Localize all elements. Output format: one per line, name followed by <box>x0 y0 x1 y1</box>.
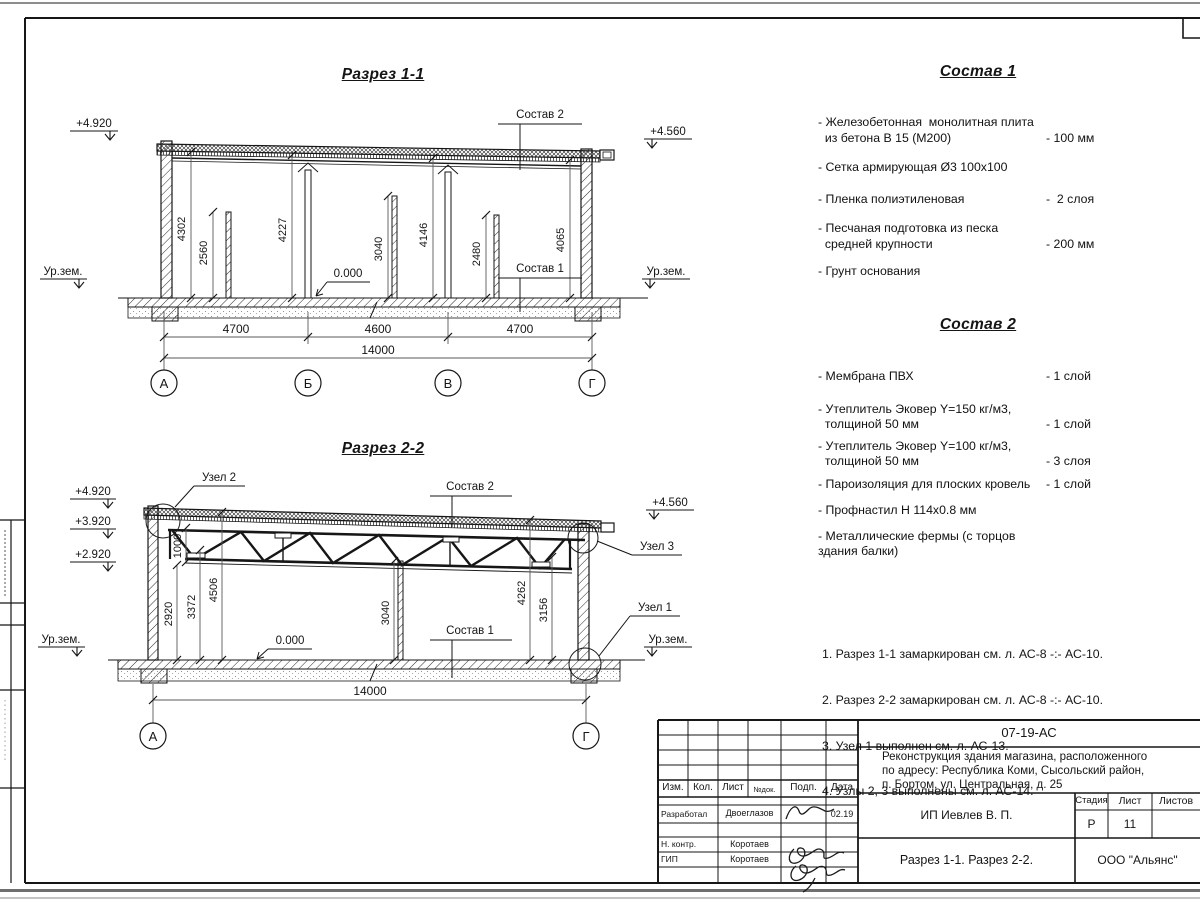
ground-left-s2: Ур.зем. <box>41 634 80 646</box>
col-ndok: №док. <box>748 785 781 794</box>
note-line: 2. Разрез 2-2 замаркирован см. л. АС-8 -… <box>822 693 1182 708</box>
list-item: - Железобетонная монолитная плита из бет… <box>818 115 1130 146</box>
dim-3040-s2: 3040 <box>380 601 392 625</box>
dim-14000-s2: 14000 <box>353 684 387 698</box>
dim-ticks-vertical-s1 <box>187 148 574 302</box>
dim-1000: 1000 <box>172 534 184 558</box>
drawing-title: Разрез 1-1. Разрез 2-2. <box>858 853 1075 867</box>
list-item: - Утеплитель Эковер Y=100 кг/м3, толщино… <box>818 439 1130 470</box>
elev-4920-s2: +4.920 <box>75 486 111 498</box>
dim-2480: 2480 <box>471 242 483 266</box>
ground-left-s1: Ур.зем. <box>43 266 82 278</box>
dim-4227: 4227 <box>277 218 289 242</box>
elev-3920-s2: +3.920 <box>75 516 111 528</box>
col-list: Лист <box>718 782 748 793</box>
dim-3040: 3040 <box>373 237 385 261</box>
col-izm: Изм. <box>658 782 688 793</box>
stage-value: Р <box>1075 817 1108 831</box>
axis-a-s2: А <box>149 729 158 744</box>
name-korotaev-1: Коротаев <box>718 839 781 849</box>
col-data: Дата <box>826 782 858 793</box>
col-podp: Подп. <box>781 782 826 793</box>
list-item: - Песчаная подготовка из песка средней к… <box>818 221 1130 252</box>
section-1-1-title: Разрез 1-1 <box>302 66 464 84</box>
sostav1-label-s1: Состав 1 <box>516 263 564 275</box>
section-1-1-drawing: 4302 2560 4227 3040 4146 2480 4065 0.000… <box>40 109 692 396</box>
role-nkontr: Н. контр. <box>661 839 717 849</box>
list-item: - Профнастил Н 114х0.8 мм <box>818 503 1130 519</box>
dim-4700a: 4700 <box>223 322 250 336</box>
client-name: ИП Иевлев В. П. <box>858 808 1075 822</box>
sheet-label: Лист <box>1108 795 1152 807</box>
list-item: - Утеплитель Эковер Y=150 кг/м3, толщино… <box>818 402 1130 433</box>
signature-strokes <box>786 807 845 892</box>
dim-14000-s1: 14000 <box>361 343 395 357</box>
node3-label: Узел 3 <box>640 541 674 553</box>
col-kol: Кол. <box>688 782 718 793</box>
sostav1-list: - Железобетонная монолитная плита из бет… <box>818 115 1130 280</box>
elev-4560-s2: +4.560 <box>652 497 688 509</box>
ground-right-s2: Ур.зем. <box>648 634 687 646</box>
list-item: - Сетка армирующая Ø3 100х100 <box>818 160 1130 176</box>
doc-code: 07-19-АС <box>858 725 1200 740</box>
dim-3156: 3156 <box>538 598 550 622</box>
zero-mark-s2: 0.000 <box>276 635 305 647</box>
dim-4065: 4065 <box>555 228 567 252</box>
sheet-value: 11 <box>1108 817 1152 831</box>
sheets-label: Листов <box>1152 795 1200 807</box>
list-item: - Мембрана ПВХ- 1 слой <box>818 369 1130 385</box>
dim-4700b: 4700 <box>507 322 534 336</box>
company-name: ООО "Альянс" <box>1075 853 1200 867</box>
sostav2-title: Состав 2 <box>897 316 1059 334</box>
sostav2-label-s2: Состав 2 <box>446 481 494 493</box>
sostav2-list: - Мембрана ПВХ- 1 слой - Утеплитель Эков… <box>818 369 1130 560</box>
dim-4146: 4146 <box>418 223 430 247</box>
dim-4600: 4600 <box>365 322 392 336</box>
dim-2560: 2560 <box>198 241 210 265</box>
axis-b-s1: Б <box>304 376 313 391</box>
node1-label: Узел 1 <box>638 602 672 614</box>
elev-2920-s2: +2.920 <box>75 549 111 561</box>
sostav2-label-s1: Состав 2 <box>516 109 564 121</box>
list-item: - Пленка полиэтиленовая- 2 слоя <box>818 192 1130 208</box>
axis-g-s2: Г <box>582 729 589 744</box>
project-name: Реконструкция здания магазина, расположе… <box>882 750 1200 793</box>
dim-2920: 2920 <box>163 602 175 626</box>
axis-a-s1: А <box>160 376 169 391</box>
sostav1-title: Состав 1 <box>897 63 1059 81</box>
drawing-sheet: { "section1": { "title": "Разрез 1-1", "… <box>0 0 1200 900</box>
signature-nkontr <box>789 848 844 863</box>
elev-4560-s1: +4.560 <box>650 126 686 138</box>
list-item: - Пароизоляция для плоских кровель- 1 сл… <box>818 477 1130 493</box>
dim-4262: 4262 <box>516 581 528 605</box>
axis-g-s1: Г <box>588 376 595 391</box>
section-2-2-title: Разрез 2-2 <box>302 440 464 458</box>
name-dvoeglazov: Двоеглазов <box>718 808 781 818</box>
elev-4920-s1: +4.920 <box>76 118 112 130</box>
signature-gip <box>791 865 845 892</box>
section-2-2-drawing: Узел 2 Узел 3 Узел 1 1000 2920 3372 4506… <box>38 472 694 749</box>
dim-4506: 4506 <box>208 578 220 602</box>
stage-label: Стадия <box>1075 795 1108 806</box>
list-item: - Металлические фермы (с торцов здания б… <box>818 529 1130 560</box>
ground-right-s1: Ур.зем. <box>646 266 685 278</box>
sostav1-label-s2: Состав 1 <box>446 625 494 637</box>
date-0219: 02.19 <box>826 809 858 819</box>
role-gip: ГИП <box>661 854 717 864</box>
name-korotaev-2: Коротаев <box>718 854 781 864</box>
note-line: 1. Разрез 1-1 замаркирован см. л. АС-8 -… <box>822 647 1182 662</box>
list-item: - Грунт основания <box>818 264 1130 280</box>
dim-4302: 4302 <box>176 217 188 241</box>
node2-label: Узел 2 <box>202 472 236 484</box>
axis-v-s1: В <box>444 376 453 391</box>
dim-3372: 3372 <box>186 595 198 619</box>
role-razrabotal: Разработал <box>661 809 717 819</box>
zero-mark-s1: 0.000 <box>334 268 363 280</box>
